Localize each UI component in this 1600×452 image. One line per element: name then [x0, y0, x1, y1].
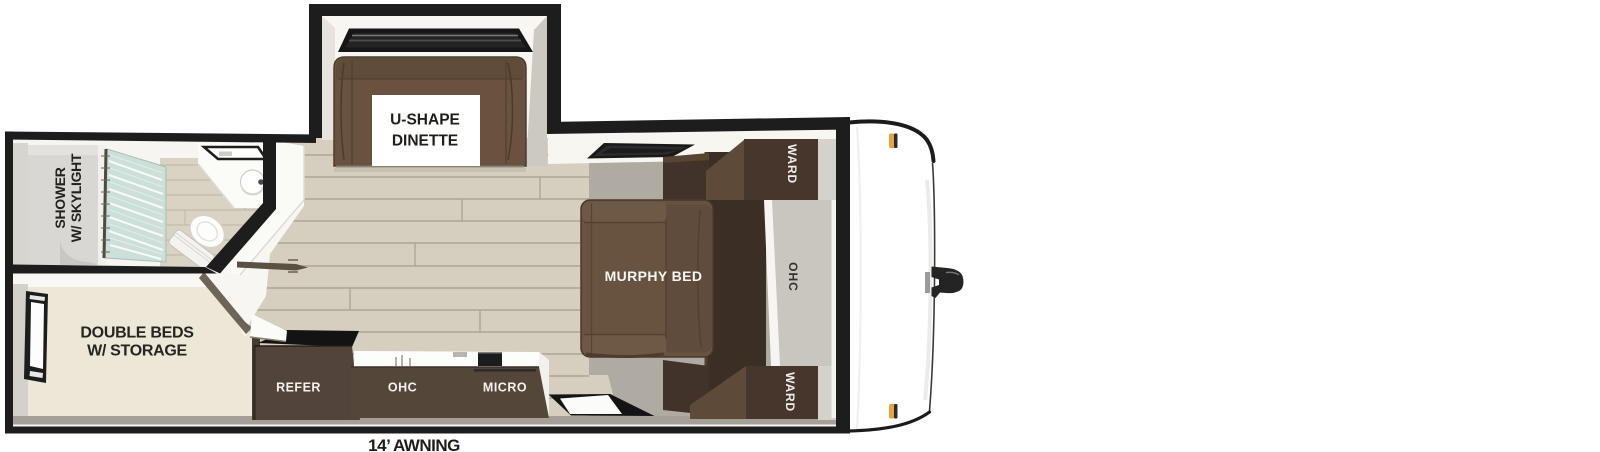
- svg-text:OHC: OHC: [388, 381, 417, 395]
- svg-text:SHOWER: SHOWER: [52, 167, 68, 228]
- svg-text:W/ STORAGE: W/ STORAGE: [87, 343, 187, 360]
- svg-text:REFER: REFER: [276, 381, 321, 395]
- svg-text:DINETTE: DINETTE: [392, 133, 458, 150]
- svg-text:MURPHY BED: MURPHY BED: [605, 268, 703, 284]
- svg-text:W/ SKYLIGHT: W/ SKYLIGHT: [68, 153, 84, 242]
- svg-text:U-SHAPE: U-SHAPE: [390, 112, 460, 129]
- svg-text:14’ AWNING: 14’ AWNING: [368, 436, 460, 452]
- svg-text:WARD: WARD: [783, 372, 797, 412]
- svg-text:OHC: OHC: [786, 262, 800, 292]
- svg-text:WARD: WARD: [785, 144, 799, 184]
- svg-text:DOUBLE BEDS: DOUBLE BEDS: [80, 325, 194, 342]
- svg-text:MICRO: MICRO: [483, 381, 527, 395]
